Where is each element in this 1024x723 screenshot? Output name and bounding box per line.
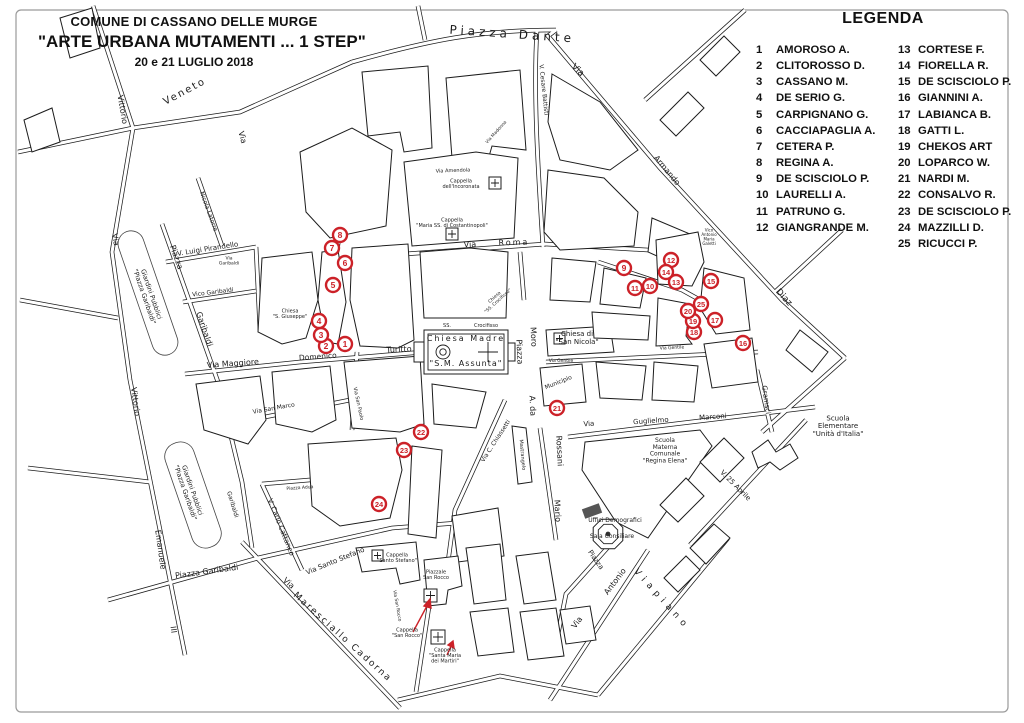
legend-item: 15DE SCISCIOLO P. xyxy=(898,74,1010,90)
legend-item-number: 24 xyxy=(898,220,914,236)
legend-item-number: 4 xyxy=(756,90,772,106)
street-label: Piazza xyxy=(514,339,524,365)
street-label: Chiesa di"San Nicola" xyxy=(555,330,598,346)
artist-marker-3[interactable]: 3 xyxy=(314,328,328,342)
city-block xyxy=(350,244,414,348)
street-label: "S.M. Assunta" xyxy=(430,359,503,368)
legend-title: LEGENDA xyxy=(756,10,1010,28)
street-label: Chiesa Madre xyxy=(427,334,505,343)
svg-text:7: 7 xyxy=(330,243,335,253)
street-label: Roma xyxy=(498,237,529,247)
city-block xyxy=(664,556,700,592)
svg-text:21: 21 xyxy=(553,404,561,413)
street-label: Piazza Adua xyxy=(286,484,314,492)
svg-text:12: 12 xyxy=(667,256,675,265)
legend-item-number: 20 xyxy=(898,155,914,171)
artist-marker-23[interactable]: 23 xyxy=(397,443,411,457)
street-label: Via xyxy=(583,420,594,429)
legend-item: 18GATTI L. xyxy=(898,123,1010,139)
street-label: Piazza Garibaldi xyxy=(174,563,238,581)
legend-item-number: 10 xyxy=(756,187,772,203)
legend-item-number: 5 xyxy=(756,107,772,123)
artist-marker-1[interactable]: 1 xyxy=(338,337,352,351)
city-block xyxy=(466,544,506,604)
legend-item-number: 1 xyxy=(756,42,772,58)
svg-text:20: 20 xyxy=(684,307,692,316)
legend-item-name: GATTI L. xyxy=(914,123,964,139)
legend-item-name: CORTESE F. xyxy=(914,42,985,58)
legend-item: 5CARPIGNANO G. xyxy=(756,107,898,123)
svg-text:1: 1 xyxy=(343,339,348,349)
artist-marker-4[interactable]: 4 xyxy=(312,314,326,328)
city-block xyxy=(470,608,514,656)
svg-text:24: 24 xyxy=(375,500,384,509)
street-label: V. Cesare Battisti xyxy=(537,64,549,116)
legend-item-number: 25 xyxy=(898,236,914,252)
legend-item: 23DE SCISCIOLO P. xyxy=(898,204,1010,220)
artist-marker-20[interactable]: 20 xyxy=(681,304,695,318)
legend-item-name: DE SERIO G. xyxy=(772,90,845,106)
legend-item-number: 19 xyxy=(898,139,914,155)
event-date: 20 e 21 LUGLIO 2018 xyxy=(38,55,350,69)
street-label: Via xyxy=(236,130,248,144)
street-label: III xyxy=(169,626,179,634)
title-block: COMUNE DI CASSANO DELLE MURGE "ARTE URBA… xyxy=(38,14,350,69)
street-label: Gramsci xyxy=(760,385,772,415)
street-label: A. da xyxy=(527,395,537,416)
street-label: Via Amendola xyxy=(436,167,471,174)
legend-item: 1AMOROSO A. xyxy=(756,42,898,58)
artist-marker-6[interactable]: 6 xyxy=(338,256,352,270)
artist-marker-24[interactable]: 24 xyxy=(372,497,386,511)
artist-marker-21[interactable]: 21 xyxy=(550,401,564,415)
city-block xyxy=(308,438,402,526)
city-block xyxy=(700,36,740,76)
legend-item: 22CONSALVO R. xyxy=(898,187,1010,203)
legend-item-number: 23 xyxy=(898,204,914,220)
artist-marker-14[interactable]: 14 xyxy=(659,265,673,279)
legend-item-name: CARPIGNANO G. xyxy=(772,107,868,123)
legend-item-name: GIANNINI A. xyxy=(914,90,983,106)
svg-text:8: 8 xyxy=(338,230,343,240)
street-label: Cappella"Santa Mariadei Martiri" xyxy=(429,648,461,665)
artist-marker-5[interactable]: 5 xyxy=(326,278,340,292)
city-block xyxy=(652,362,698,402)
artist-marker-16[interactable]: 16 xyxy=(736,336,750,350)
legend-item-name: PATRUNO G. xyxy=(772,204,845,220)
city-block xyxy=(272,366,336,432)
svg-text:4: 4 xyxy=(317,316,322,326)
legend-item-name: RICUCCI P. xyxy=(914,236,977,252)
city-block xyxy=(660,92,704,136)
legend-item-name: LOPARCO W. xyxy=(914,155,990,171)
city-block xyxy=(516,552,556,604)
svg-text:11: 11 xyxy=(631,284,639,293)
legend-item-number: 8 xyxy=(756,155,772,171)
legend-item-name: MAZZILLI D. xyxy=(914,220,984,236)
legend-item-number: 11 xyxy=(756,204,772,220)
street-label: Uffici Demografici xyxy=(588,517,642,524)
city-block xyxy=(404,152,518,246)
municipality-title: COMUNE DI CASSANO DELLE MURGE xyxy=(38,14,350,29)
legend-item-name: CACCIAPAGLIA A. xyxy=(772,123,875,139)
street-label: Garibaldi xyxy=(225,491,240,519)
artist-marker-11[interactable]: 11 xyxy=(628,281,642,295)
svg-text:16: 16 xyxy=(739,339,747,348)
street-label: Turitto xyxy=(385,344,412,354)
legend-item: 9DE SCISCIOLO P. xyxy=(756,171,898,187)
legend-item-name: CONSALVO R. xyxy=(914,187,996,203)
street-label: Crocifisso xyxy=(474,323,498,329)
legend-item: 11PATRUNO G. xyxy=(756,204,898,220)
legend-column-2: 13CORTESE F.14FIORELLA R.15DE SCISCIOLO … xyxy=(898,42,1010,252)
legend-item-number: 6 xyxy=(756,123,772,139)
street-label: Via Gentile xyxy=(549,358,574,364)
legend-item: 12GIANGRANDE M. xyxy=(756,220,898,236)
svg-text:10: 10 xyxy=(646,282,654,291)
svg-text:6: 6 xyxy=(343,258,348,268)
legend-item: 7CETERA P. xyxy=(756,139,898,155)
street-label: Antonio xyxy=(602,566,628,596)
artist-marker-8[interactable]: 8 xyxy=(333,228,347,242)
legend-item-name: LAURELLI A. xyxy=(772,187,846,203)
legend-item-name: DE SCISCIOLO P. xyxy=(914,74,1011,90)
city-block xyxy=(550,258,596,302)
map-page: Piazza DanteVenetoViaVittorioViaPiazzaGa… xyxy=(0,0,1024,723)
legend-item: 2CLITOROSSO D. xyxy=(756,58,898,74)
street-label: PiazzaleSan Rocco xyxy=(423,569,449,581)
legend-item: 17LABIANCA B. xyxy=(898,107,1010,123)
legend-item-number: 13 xyxy=(898,42,914,58)
street-label: SS. xyxy=(443,323,451,329)
legend-item: 24MAZZILLI D. xyxy=(898,220,1010,236)
legend-item-number: 15 xyxy=(898,74,914,90)
street-label: Nicola Latorre xyxy=(198,191,219,233)
legend-item: 4DE SERIO G. xyxy=(756,90,898,106)
legend-item-number: 16 xyxy=(898,90,914,106)
street-label: Maresciallo Cadorna xyxy=(291,591,394,685)
street-label: Veneto xyxy=(162,76,208,108)
street-label: Cappella"San Rocco" xyxy=(392,627,422,639)
legend-item-name: NARDI M. xyxy=(914,171,969,187)
event-title: "ARTE URBANA MUTAMENTI ... 1 STEP" xyxy=(38,32,350,52)
svg-text:5: 5 xyxy=(331,280,336,290)
legend-item: 8REGINA A. xyxy=(756,155,898,171)
legend-item: 3CASSANO M. xyxy=(756,74,898,90)
legend-item-name: CHEKOS ART xyxy=(914,139,992,155)
legend-item: 21NARDI M. xyxy=(898,171,1010,187)
legend-item-name: AMOROSO A. xyxy=(772,42,850,58)
legend-item-name: DE SCISCIOLO P. xyxy=(914,204,1011,220)
artist-marker-9[interactable]: 9 xyxy=(617,261,631,275)
legend-item: 6CACCIAPAGLIA A. xyxy=(756,123,898,139)
legend-item-name: CETERA P. xyxy=(772,139,834,155)
city-block xyxy=(300,128,392,238)
legend-item: 20LOPARCO W. xyxy=(898,155,1010,171)
svg-text:23: 23 xyxy=(400,446,408,455)
legend-item-number: 3 xyxy=(756,74,772,90)
street-label: Emanuele xyxy=(153,529,167,570)
street-label: Piazza Dante xyxy=(449,23,575,46)
legend-item: 13CORTESE F. xyxy=(898,42,1010,58)
city-block xyxy=(258,252,318,344)
artist-marker-10[interactable]: 10 xyxy=(643,279,657,293)
street-label: Sala Consiliare xyxy=(590,533,635,540)
city-block xyxy=(544,170,638,250)
city-block xyxy=(408,446,442,538)
legend-item-name: DE SCISCIOLO P. xyxy=(772,171,869,187)
svg-text:22: 22 xyxy=(417,428,425,437)
city-block xyxy=(592,312,650,340)
legend-item-number: 22 xyxy=(898,187,914,203)
legend-item-number: 14 xyxy=(898,58,914,74)
city-block xyxy=(520,608,564,660)
street-label: Armando xyxy=(652,154,682,188)
city-block xyxy=(752,440,798,470)
svg-text:3: 3 xyxy=(319,330,324,340)
street-label: V. Carlo Cattaneo xyxy=(266,498,296,557)
street-label: Via Santo Stefano xyxy=(305,546,366,577)
city-block xyxy=(446,70,526,160)
artist-marker-15[interactable]: 15 xyxy=(704,274,718,288)
street-label: Via San Rocco xyxy=(391,590,402,622)
legend-item: 16GIANNINI A. xyxy=(898,90,1010,106)
street-label: ViaGaribaldi xyxy=(219,256,239,267)
artist-marker-17[interactable]: 17 xyxy=(708,313,722,327)
legend-item-number: 17 xyxy=(898,107,914,123)
legend-item: 19CHEKOS ART xyxy=(898,139,1010,155)
artist-marker-22[interactable]: 22 xyxy=(414,425,428,439)
artist-marker-7[interactable]: 7 xyxy=(325,241,339,255)
legend-item: 14FIORELLA R. xyxy=(898,58,1010,74)
legend-column-1: 1AMOROSO A.2CLITOROSSO D.3CASSANO M.4DE … xyxy=(756,42,898,252)
svg-text:14: 14 xyxy=(662,268,671,277)
city-block xyxy=(690,524,730,564)
legend-item-number: 2 xyxy=(756,58,772,74)
legend-item-name: CASSANO M. xyxy=(772,74,848,90)
street-label: Vittorio xyxy=(129,387,142,417)
legend-item-name: REGINA A. xyxy=(772,155,834,171)
legend-item-name: CLITOROSSO D. xyxy=(772,58,865,74)
street-label: Mario xyxy=(552,500,562,523)
svg-text:25: 25 xyxy=(697,300,705,309)
street-label: Vittorio xyxy=(116,94,130,124)
street-label: ScuolaElementare"Unità d'Italia" xyxy=(813,414,864,438)
legend-item-number: 18 xyxy=(898,123,914,139)
legend-item-name: GIANGRANDE M. xyxy=(772,220,869,236)
legend-item: 10LAURELLI A. xyxy=(756,187,898,203)
legend-item-number: 12 xyxy=(756,220,772,236)
street-label: Rossani xyxy=(554,435,565,466)
legend-item: 25RICUCCI P. xyxy=(898,236,1010,252)
svg-text:18: 18 xyxy=(690,328,698,337)
city-block xyxy=(596,362,646,400)
legend-item-name: FIORELLA R. xyxy=(914,58,989,74)
svg-text:13: 13 xyxy=(672,278,680,287)
svg-text:9: 9 xyxy=(622,263,627,273)
legend-item-number: 9 xyxy=(756,171,772,187)
city-block xyxy=(432,384,486,428)
street-label: Moro xyxy=(528,327,538,347)
legend-item-number: 7 xyxy=(756,139,772,155)
svg-text:17: 17 xyxy=(711,316,719,325)
legend-item-number: 21 xyxy=(898,171,914,187)
legend-item-name: LABIANCA B. xyxy=(914,107,991,123)
artist-marker-25[interactable]: 25 xyxy=(694,297,708,311)
street-label: Via xyxy=(464,240,477,249)
legend: LEGENDA 1AMOROSO A.2CLITOROSSO D.3CASSAN… xyxy=(756,10,1010,252)
svg-text:15: 15 xyxy=(707,277,715,286)
